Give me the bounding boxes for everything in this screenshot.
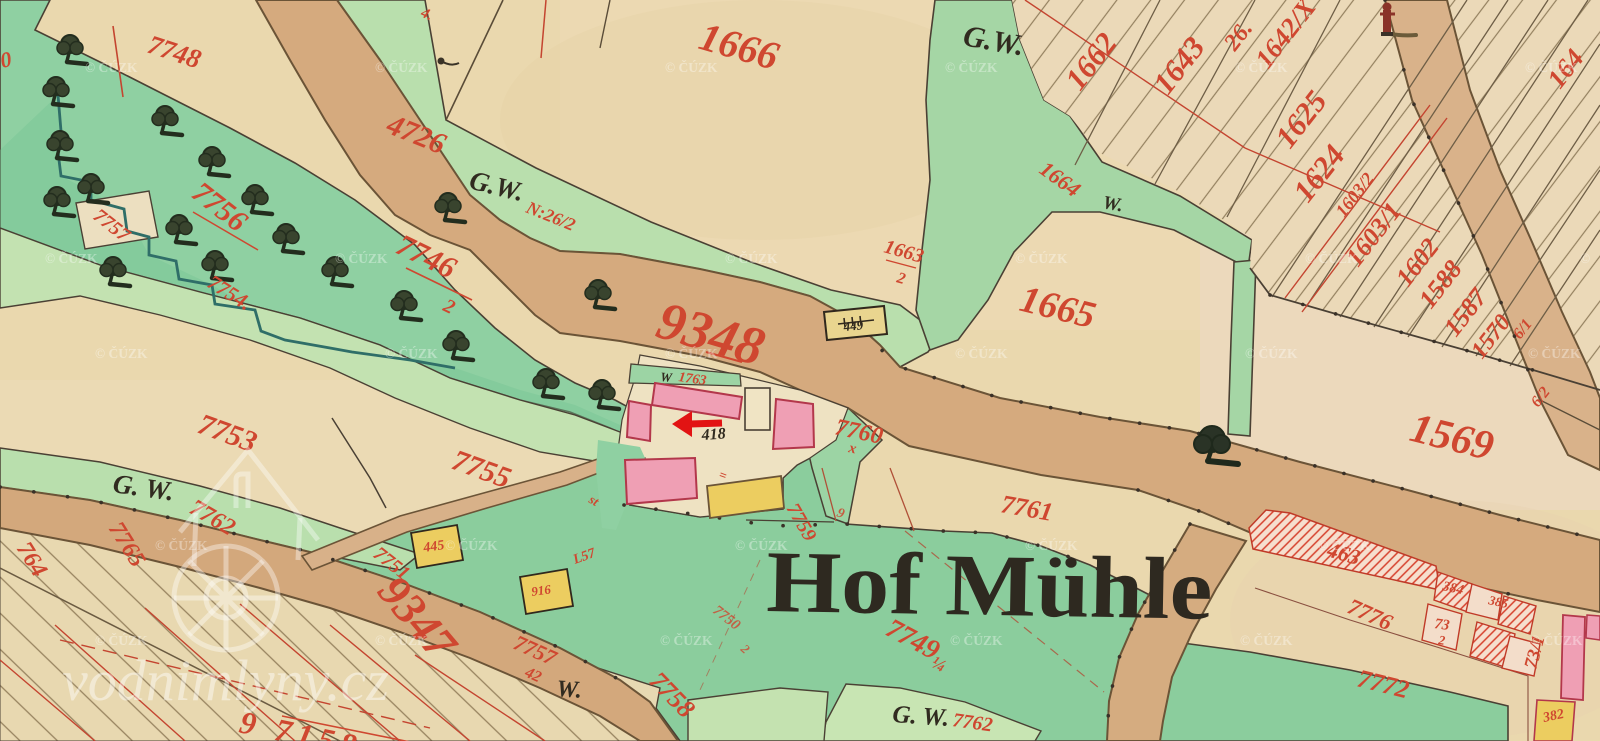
svg-text:© ČÚZK: © ČÚZK	[95, 346, 148, 361]
svg-text:© ČÚZK: © ČÚZK	[1305, 251, 1358, 266]
svg-text:© ČÚZK: © ČÚZK	[335, 251, 388, 266]
svg-text:© ČÚZK: © ČÚZK	[95, 633, 148, 648]
svg-text:© ČÚZK: © ČÚZK	[375, 633, 428, 648]
svg-text:© ČÚZK: © ČÚZK	[1245, 346, 1298, 361]
svg-text:© ČÚZK: © ČÚZK	[1525, 60, 1578, 75]
svg-text:© ČÚZK: © ČÚZK	[85, 60, 138, 75]
svg-text:© ČÚZK: © ČÚZK	[45, 251, 98, 266]
svg-text:445: 445	[421, 538, 445, 556]
svg-text:© ČÚZK: © ČÚZK	[950, 633, 1003, 648]
svg-text:Hof Mühle: Hof Mühle	[766, 534, 1214, 639]
svg-text:vodnimlyny.cz: vodnimlyny.cz	[62, 648, 389, 713]
svg-text:© ČÚZK: © ČÚZK	[445, 538, 498, 553]
svg-text:© ČÚZK: © ČÚZK	[660, 633, 713, 648]
svg-text:916: 916	[530, 581, 552, 599]
svg-text:© ČÚZK: © ČÚZK	[1235, 60, 1288, 75]
svg-text:© ČÚZK: © ČÚZK	[1318, 538, 1371, 553]
svg-text:© ČÚZK: © ČÚZK	[385, 346, 438, 361]
svg-text:© ČÚZK: © ČÚZK	[1025, 538, 1078, 553]
svg-text:W.: W.	[1101, 192, 1125, 216]
svg-text:© ČÚZK: © ČÚZK	[1530, 633, 1583, 648]
svg-text:© ČÚZK: © ČÚZK	[1240, 633, 1293, 648]
svg-text:© ČÚZK: © ČÚZK	[665, 60, 718, 75]
svg-text:G. W.: G. W.	[892, 701, 950, 732]
svg-text:©: ©	[1580, 251, 1590, 266]
svg-text:© ČÚZK: © ČÚZK	[375, 60, 428, 75]
svg-text:© ČÚZK: © ČÚZK	[945, 60, 998, 75]
svg-text:© ČÚZK: © ČÚZK	[735, 538, 788, 553]
svg-text:© ČÚZK: © ČÚZK	[725, 251, 778, 266]
svg-text:418: 418	[700, 425, 726, 444]
svg-text:© ČÚZK: © ČÚZK	[1528, 346, 1581, 361]
svg-text:© ČÚZK: © ČÚZK	[1015, 251, 1068, 266]
svg-text:© ČÚZK: © ČÚZK	[665, 346, 718, 361]
svg-text:© ČÚZK: © ČÚZK	[955, 346, 1008, 361]
svg-text:W.: W.	[556, 676, 583, 704]
svg-text:73: 73	[1433, 616, 1451, 634]
